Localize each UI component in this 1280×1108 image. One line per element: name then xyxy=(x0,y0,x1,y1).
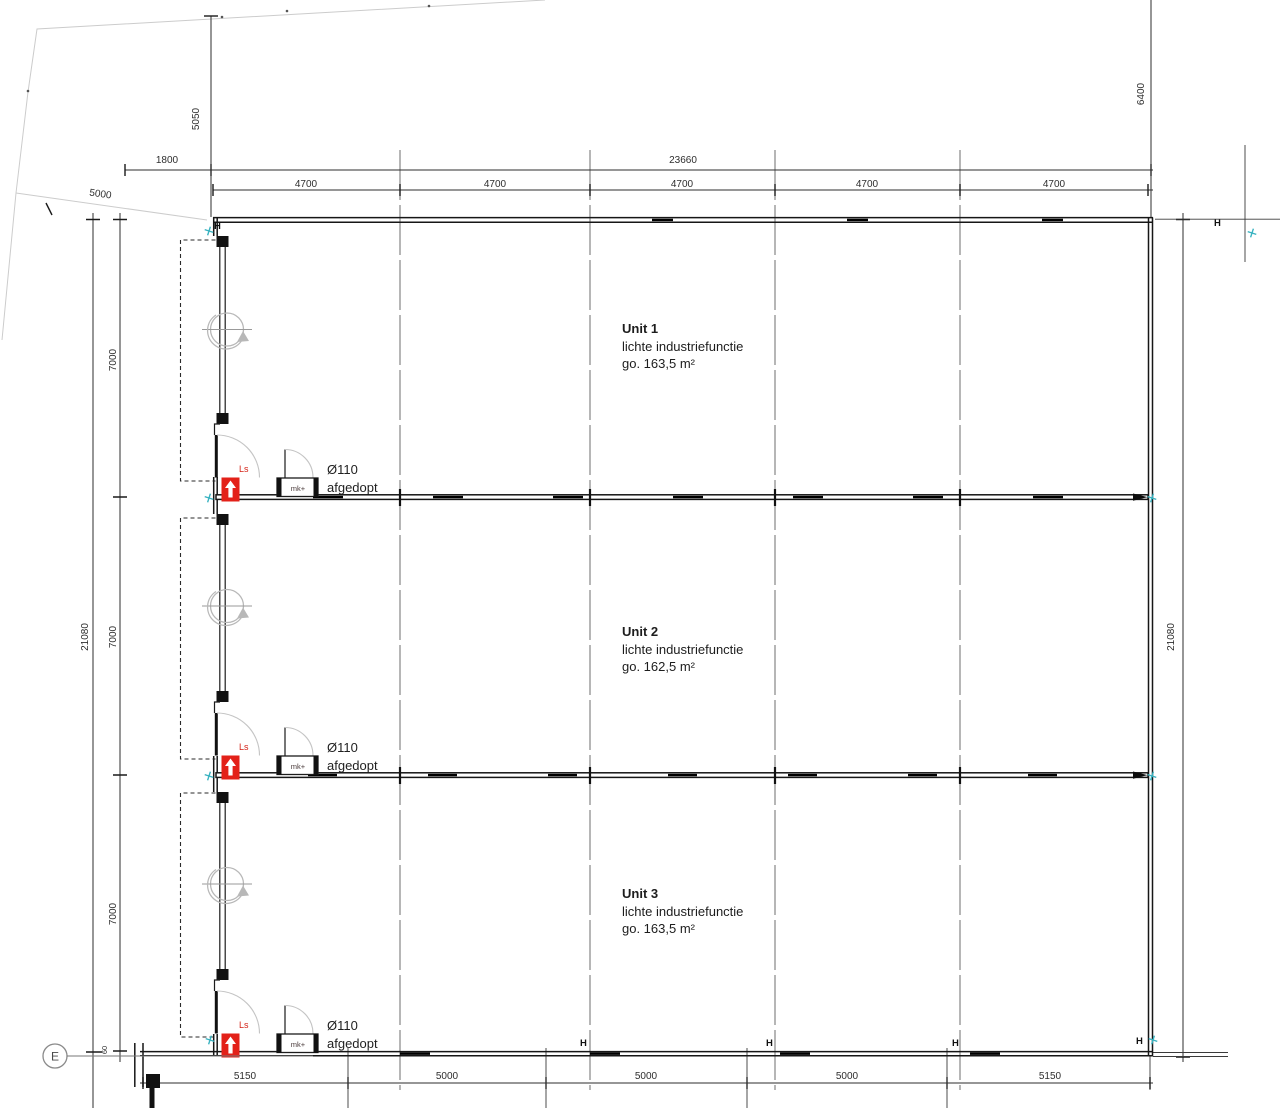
dim-site-diagonal: 5000 xyxy=(89,188,113,202)
grid-row-e: E 60 xyxy=(43,1044,313,1068)
emergency-exit-icon xyxy=(222,756,240,780)
unit-area: go. 163,5 m² xyxy=(622,356,696,371)
dimensions-right: 21080 xyxy=(1150,145,1280,1090)
column-marker-h: H xyxy=(580,1038,587,1049)
column-grid-lines xyxy=(400,150,960,1090)
canopy-outline xyxy=(181,518,216,759)
meter-closet-label: mk+ xyxy=(291,762,306,771)
pipe-label: Ø110 xyxy=(327,740,358,755)
dim-left-setback: 5050 xyxy=(191,107,202,130)
grid-row-label: E xyxy=(51,1050,59,1064)
dimensions-top: 1800 23660 4700 4700 4700 4700 4700 5050… xyxy=(46,0,1153,217)
unit-function: lichte industriefunctie xyxy=(622,904,743,919)
pipe-label: Ø110 xyxy=(327,1018,358,1033)
floor-plan-canvas: 1800 23660 4700 4700 4700 4700 4700 5050… xyxy=(0,0,1280,1108)
dim-left-seg-2: 7000 xyxy=(108,625,119,648)
dim-bay-1: 4700 xyxy=(295,179,318,190)
stair-label: Ls xyxy=(239,464,249,474)
column-marker-h: H xyxy=(1214,218,1221,229)
dim-left-total: 21080 xyxy=(80,623,91,651)
canopy-outline xyxy=(181,793,216,1037)
meter-closet-label: mk+ xyxy=(291,1040,306,1049)
stair-label: Ls xyxy=(239,742,249,752)
meter-closet: mk+ xyxy=(277,1006,318,1054)
unit-2: Ls mk+ Ø110 afgedopt Unit 2 lichte indus… xyxy=(181,514,744,780)
corner-column xyxy=(146,1074,160,1088)
entrance-door xyxy=(215,702,260,756)
column-marker-h: H xyxy=(1136,1036,1143,1047)
dim-grid-offset: 60 xyxy=(100,1046,109,1054)
dim-top-offset: 1800 xyxy=(156,155,179,166)
unit-name: Unit 1 xyxy=(622,321,658,336)
dim-bottom-bay-3: 5000 xyxy=(635,1071,658,1082)
dim-bottom-bay-2: 5000 xyxy=(436,1071,459,1082)
column-marker-h: H xyxy=(766,1038,773,1049)
unit-label: Unit 3 lichte industriefunctie go. 163,5… xyxy=(622,886,743,936)
dim-top-total: 23660 xyxy=(669,155,697,166)
dim-bay-3: 4700 xyxy=(671,179,694,190)
unit-function: lichte industriefunctie xyxy=(622,339,743,354)
dimensions-bottom: 5150 5000 5000 5000 5150 xyxy=(140,1048,1153,1108)
dim-bottom-bay-5: 5150 xyxy=(1039,1071,1062,1082)
dim-bay-5: 4700 xyxy=(1043,179,1066,190)
entrance-door xyxy=(215,424,260,478)
canopy-outline xyxy=(181,240,216,481)
dim-right-setback: 6400 xyxy=(1136,82,1147,105)
pipe-label: Ø110 xyxy=(327,462,358,477)
emergency-exit-icon xyxy=(222,478,240,502)
dim-bottom-bay-4: 5000 xyxy=(836,1071,859,1082)
dim-right-total: 21080 xyxy=(1166,623,1177,651)
turning-circle-icon xyxy=(202,868,252,904)
pipe-note: afgedopt xyxy=(327,758,378,773)
meter-closet-label: mk+ xyxy=(291,484,306,493)
unit-label: Unit 2 lichte industriefunctie go. 162,5… xyxy=(622,624,743,674)
turning-circle-icon xyxy=(202,590,252,626)
dim-bay-4: 4700 xyxy=(856,179,879,190)
stair-label: Ls xyxy=(239,1020,249,1030)
unit-3: Ls mk+ Ø110 afgedopt Unit 3 lichte indus… xyxy=(181,792,744,1058)
unit-name: Unit 3 xyxy=(622,886,658,901)
pipe-note: afgedopt xyxy=(327,1036,378,1051)
unit-function: lichte industriefunctie xyxy=(622,642,743,657)
dim-bottom-bay-1: 5150 xyxy=(234,1071,257,1082)
meter-closet: mk+ xyxy=(277,728,318,776)
meter-closet: mk+ xyxy=(277,450,318,498)
unit-1: Ls mk+ Ø110 afgedopt Unit 1 lichte indus… xyxy=(181,236,744,502)
floor-plan-drawing: 1800 23660 4700 4700 4700 4700 4700 5050… xyxy=(0,0,1280,1108)
survey-marker-icon xyxy=(1246,227,1257,238)
emergency-exit-icon xyxy=(222,1034,240,1058)
dimensions-left: 21080 7000 7000 7000 xyxy=(80,213,127,1108)
entrance-door xyxy=(215,980,260,1034)
unit-name: Unit 2 xyxy=(622,624,658,639)
column-marker-h: H xyxy=(952,1038,959,1049)
dim-bay-2: 4700 xyxy=(484,179,507,190)
dim-left-seg-1: 7000 xyxy=(108,348,119,371)
column-marker-h: H xyxy=(214,221,221,232)
unit-area: go. 163,5 m² xyxy=(622,921,696,936)
dim-left-seg-3: 7000 xyxy=(108,902,119,925)
unit-area: go. 162,5 m² xyxy=(622,659,696,674)
turning-circle-icon xyxy=(202,313,252,349)
pipe-note: afgedopt xyxy=(327,480,378,495)
unit-label: Unit 1 lichte industriefunctie go. 163,5… xyxy=(622,321,743,371)
